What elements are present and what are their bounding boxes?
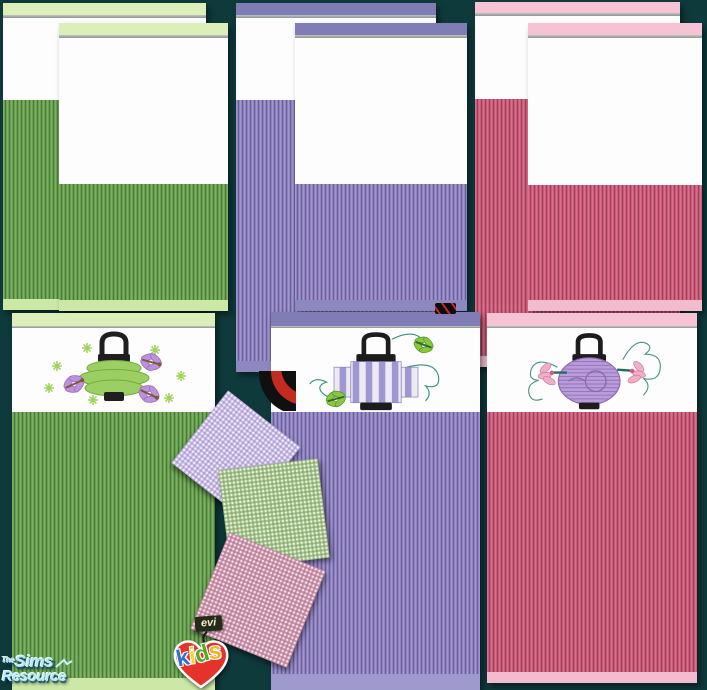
pink-bedding-front-panel: [528, 23, 702, 311]
lantern-body-center: [350, 362, 400, 403]
white-sheet-area: [59, 38, 228, 184]
lantern-art-band: [271, 328, 480, 412]
evi-kids-logo: evi kids: [169, 616, 235, 690]
green-pillow-band: [12, 313, 215, 326]
lantern-handle: [102, 334, 126, 356]
pink-pillow-band: [487, 313, 697, 326]
green-tiered-lantern-art: [29, 328, 199, 412]
green-bedding-front-panel: [59, 23, 228, 311]
pink-lantern-bedding-panel: [487, 313, 697, 683]
purple-bedding-front-panel: [295, 23, 467, 311]
purple-round-lantern-art: [497, 328, 687, 412]
evi-tag-label: evi: [195, 615, 223, 632]
lantern-art-band: [487, 328, 697, 412]
purple-footer-band: [271, 674, 480, 690]
white-sheet-area: [295, 38, 467, 184]
hidden-object-glimpse: [435, 303, 456, 314]
lantern-base: [579, 403, 600, 410]
lantern-base: [104, 392, 124, 401]
pink-pillow-band: [475, 2, 680, 13]
purple-pillow-band: [295, 23, 467, 35]
pink-footer-band: [487, 672, 697, 683]
tsr-logo-resource: Resource: [2, 669, 73, 684]
lantern-handle: [363, 335, 387, 356]
sims-resource-logo: The Sims Resource: [2, 653, 73, 684]
lantern-body-side: [401, 367, 418, 397]
green-footer-band: [59, 300, 228, 311]
purple-pillow-band: [236, 3, 436, 15]
tsr-swoosh-icon: [55, 658, 73, 668]
green-pillow-band: [3, 3, 206, 15]
purple-box-lantern-art: [281, 328, 471, 412]
white-sheet-area: [528, 38, 702, 185]
bedding-preview-collage: The Sims Resource evi kids: [0, 0, 707, 690]
green-pillow-band: [59, 23, 228, 35]
pink-pillow-band: [528, 23, 702, 35]
kids-letter: s: [208, 637, 223, 665]
hidden-wheel-glimpse: [249, 371, 296, 411]
purple-pillow-band: [271, 312, 480, 326]
green-striped-blanket: [59, 184, 228, 300]
purple-striped-blanket: [295, 184, 467, 300]
lantern-handle: [578, 335, 600, 356]
lantern-base: [360, 403, 392, 410]
pink-striped-blanket: [528, 185, 702, 300]
pink-footer-band: [528, 300, 702, 311]
pink-striped-blanket: [487, 412, 697, 672]
lantern-art-band: [12, 328, 215, 412]
